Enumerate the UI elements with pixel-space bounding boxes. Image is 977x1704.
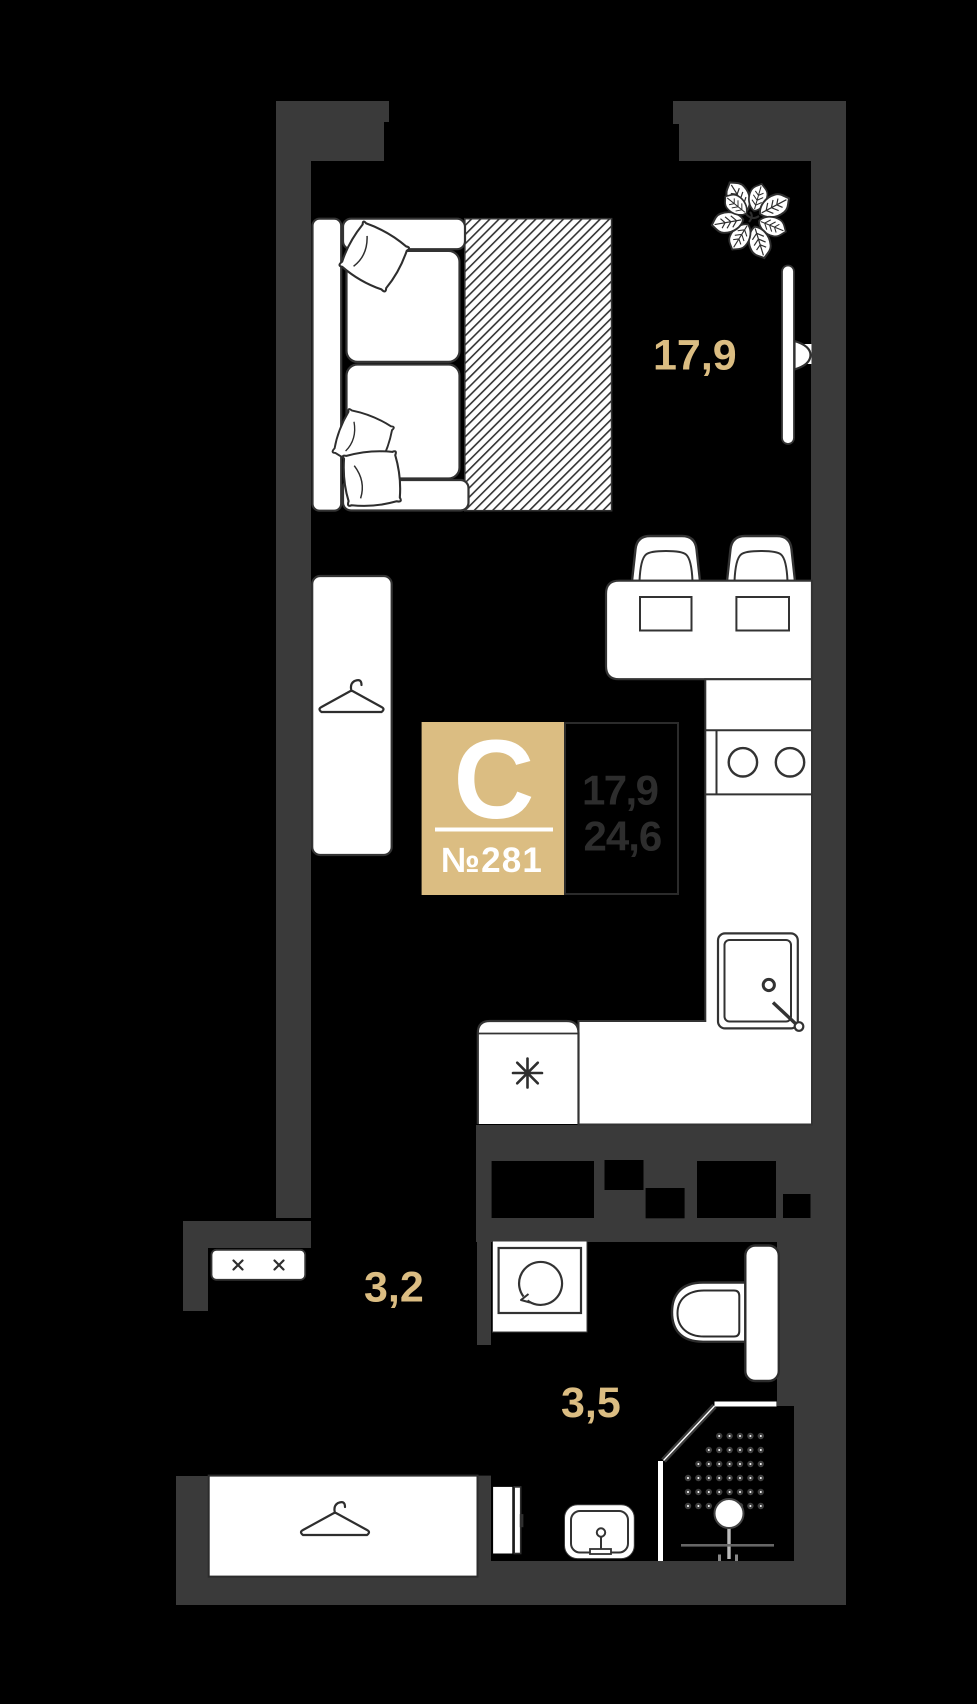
svg-text:С: С: [454, 717, 535, 842]
svg-text:17,9: 17,9: [653, 332, 737, 380]
svg-text:17,9: 17,9: [582, 767, 658, 814]
svg-text:3,2: 3,2: [364, 1264, 424, 1312]
svg-text:3,5: 3,5: [561, 1379, 621, 1427]
svg-text:№281: №281: [441, 841, 543, 880]
svg-text:24,6: 24,6: [584, 813, 662, 860]
